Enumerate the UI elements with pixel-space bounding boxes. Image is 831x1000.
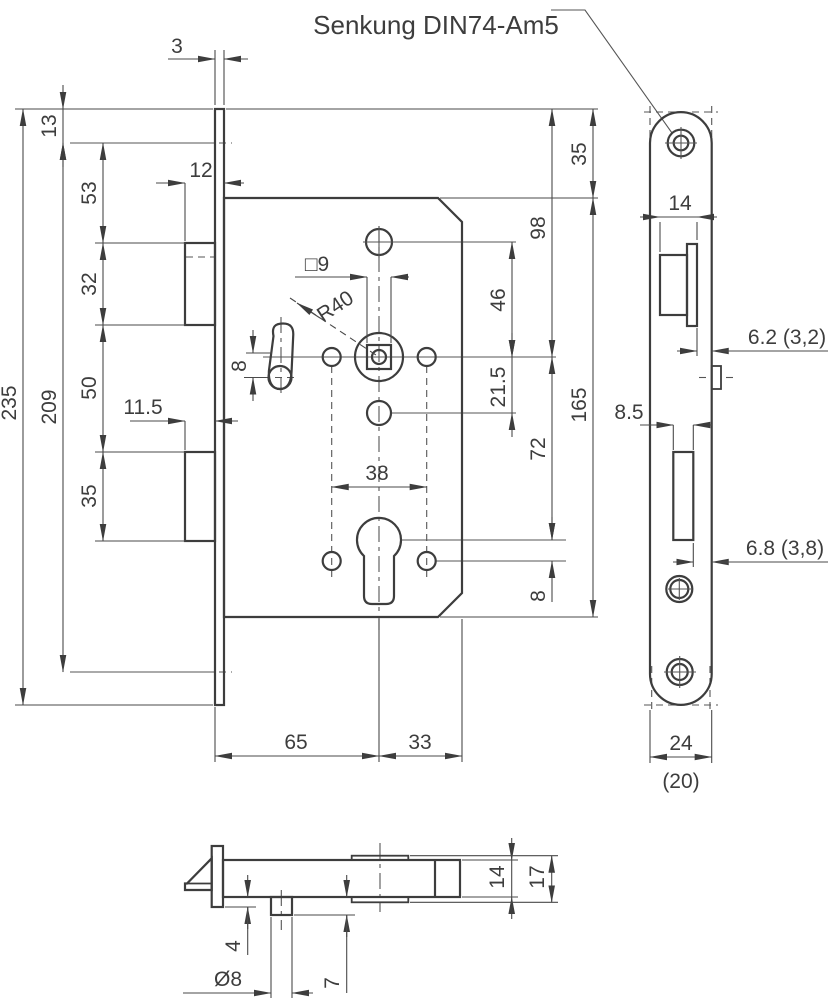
follower-boss-bottom	[352, 897, 409, 902]
edge-nub	[699, 366, 733, 389]
dim-98: 98	[527, 216, 550, 239]
latch-wedge	[185, 858, 212, 890]
dim-17: 17	[526, 865, 549, 888]
grub-screw-hole	[666, 576, 692, 602]
dim-33: 33	[408, 731, 431, 754]
dim-235: 235	[0, 385, 21, 420]
dim-65: 65	[284, 731, 307, 754]
dim-6-8: 6.8 (3,8)	[746, 537, 824, 560]
front-dimensions-left: 3 13 53 32 50 35 209 235	[0, 35, 272, 705]
dim-7: 7	[321, 977, 344, 989]
dim-8-right: 8	[527, 590, 550, 602]
dim-35-right: 35	[568, 142, 591, 165]
dim-13: 13	[38, 114, 61, 137]
front-dimensions-center: □9 R40 38 65 33	[215, 253, 462, 762]
dim-165: 165	[568, 387, 591, 422]
dim-38: 38	[365, 462, 388, 485]
dim-11-5: 11.5	[123, 396, 162, 419]
latch-bolt-front	[185, 243, 215, 325]
dim-12: 12	[189, 159, 212, 182]
dim-6-2: 6.2 (3,2)	[748, 326, 826, 349]
dim-14-side: 14	[668, 192, 692, 215]
dim-24: 24	[669, 732, 693, 755]
technical-drawing-page: 3 13 53 32 50 35 209 235	[0, 0, 831, 1000]
front-view: 3 13 53 32 50 35 209 235	[0, 35, 598, 762]
dim-50: 50	[78, 376, 101, 399]
dim-14-bottom: 14	[486, 865, 509, 889]
dim-72: 72	[527, 437, 550, 460]
dim-8-5: 8.5	[614, 401, 643, 424]
deadbolt-side	[673, 452, 693, 540]
top-screw-hole	[665, 127, 697, 159]
dead-bolt-front	[185, 452, 215, 541]
annotation-leader	[551, 10, 672, 133]
dim-square-9: □9	[305, 253, 329, 276]
dim-3: 3	[171, 35, 183, 58]
annotation-label: Senkung DIN74-Am5	[313, 10, 559, 40]
dim-20: (20)	[662, 770, 699, 793]
side-dimensions: 14 6.2 (3,2) 8.5 6.8 (3,8) 24 (20)	[614, 192, 828, 793]
dim-8-slot: 8	[228, 360, 251, 372]
dim-4: 4	[222, 940, 245, 952]
dim-r40: R40	[313, 286, 358, 326]
dim-21-5: 21.5	[487, 367, 510, 408]
mortise-lock-drawing: 3 13 53 32 50 35 209 235	[0, 0, 831, 1000]
dim-35-left: 35	[78, 484, 101, 507]
dim-46: 46	[487, 288, 510, 311]
bottom-dimensions: 14 17 4 7 Ø8	[183, 838, 558, 998]
dim-209: 209	[38, 389, 61, 424]
latch-side-body	[660, 255, 687, 315]
front-holes	[269, 226, 436, 604]
faceplate-front	[215, 109, 224, 705]
latch-side-head	[687, 244, 697, 326]
lock-body-bottom	[223, 860, 460, 897]
dim-53: 53	[78, 181, 101, 204]
front-dimensions-right: 35 98 46 21.5 72 165 8	[226, 109, 598, 617]
bottom-view: 14 17 4 7 Ø8	[183, 838, 558, 998]
bottom-screw-hole	[664, 656, 696, 688]
dim-32: 32	[78, 272, 101, 295]
faceplate-bottom-view	[212, 846, 223, 907]
dim-dia8: Ø8	[214, 968, 242, 991]
